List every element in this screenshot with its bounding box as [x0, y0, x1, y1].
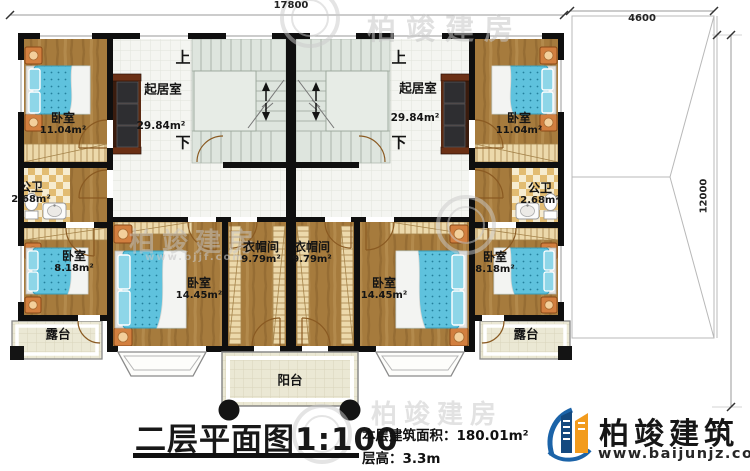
- room-label-bath: 公卫2.68m²: [11, 181, 50, 206]
- dimension-side-height: 12000: [699, 179, 710, 214]
- room-label-bath: 公卫2.68m²: [520, 182, 559, 207]
- room-label-balcony: 阳台: [277, 370, 302, 389]
- room-area-living: 29.84m²: [391, 112, 440, 124]
- room-label-terrace: 露台: [45, 324, 70, 343]
- brand-logo-icon: [549, 410, 590, 460]
- room-label-bedroom: 卧室14.45m²: [176, 277, 222, 302]
- room-label-bedroom: 卧室11.04m²: [496, 112, 542, 137]
- stairs-up-label: 上: [391, 47, 406, 68]
- room-label-cloakroom: 衣帽间9.79m²: [241, 241, 280, 266]
- corner-post: [10, 346, 24, 360]
- room-label-bedroom: 卧室8.18m²: [475, 251, 514, 276]
- room-label-bedroom: 卧室11.04m²: [40, 112, 86, 137]
- floor-area-info: 本层建筑面积：180.01m²: [362, 424, 529, 444]
- brand-url: www.baijunjz.com: [598, 446, 750, 462]
- floor-plan-canvas: [0, 0, 750, 471]
- neighbor-roof: [572, 16, 717, 338]
- room-label-bedroom: 卧室8.18m²: [54, 250, 93, 275]
- floor-plan-page: 柏竣建房 柏竣建房 www.bjjf.com 柏竣建房 17800 4600 1…: [0, 0, 750, 471]
- dimension-side-top: 4600: [628, 13, 656, 24]
- room-label-bedroom: 卧室14.45m²: [361, 277, 407, 302]
- stairs-down-label: 下: [391, 132, 406, 153]
- floor-height-info: 层高：3.3m: [362, 447, 440, 467]
- room-label-terrace: 露台: [513, 324, 538, 343]
- stairs-up-label: 上: [175, 47, 190, 68]
- title-underline: [133, 453, 359, 458]
- bath-vestibule-floor: [70, 168, 107, 222]
- stair-landing: [194, 71, 256, 131]
- sofa: [112, 74, 141, 154]
- room-label-living: 起居室: [144, 79, 182, 98]
- dimension-top-width: 17800: [274, 0, 309, 11]
- stairs-down-label: 下: [175, 132, 190, 153]
- staircase: [192, 39, 286, 163]
- room-area-living: 29.84m²: [137, 120, 186, 132]
- bay-window: [118, 352, 206, 376]
- room-label-cloakroom: 衣帽间9.79m²: [292, 241, 331, 266]
- room-label-living: 起居室: [399, 78, 437, 97]
